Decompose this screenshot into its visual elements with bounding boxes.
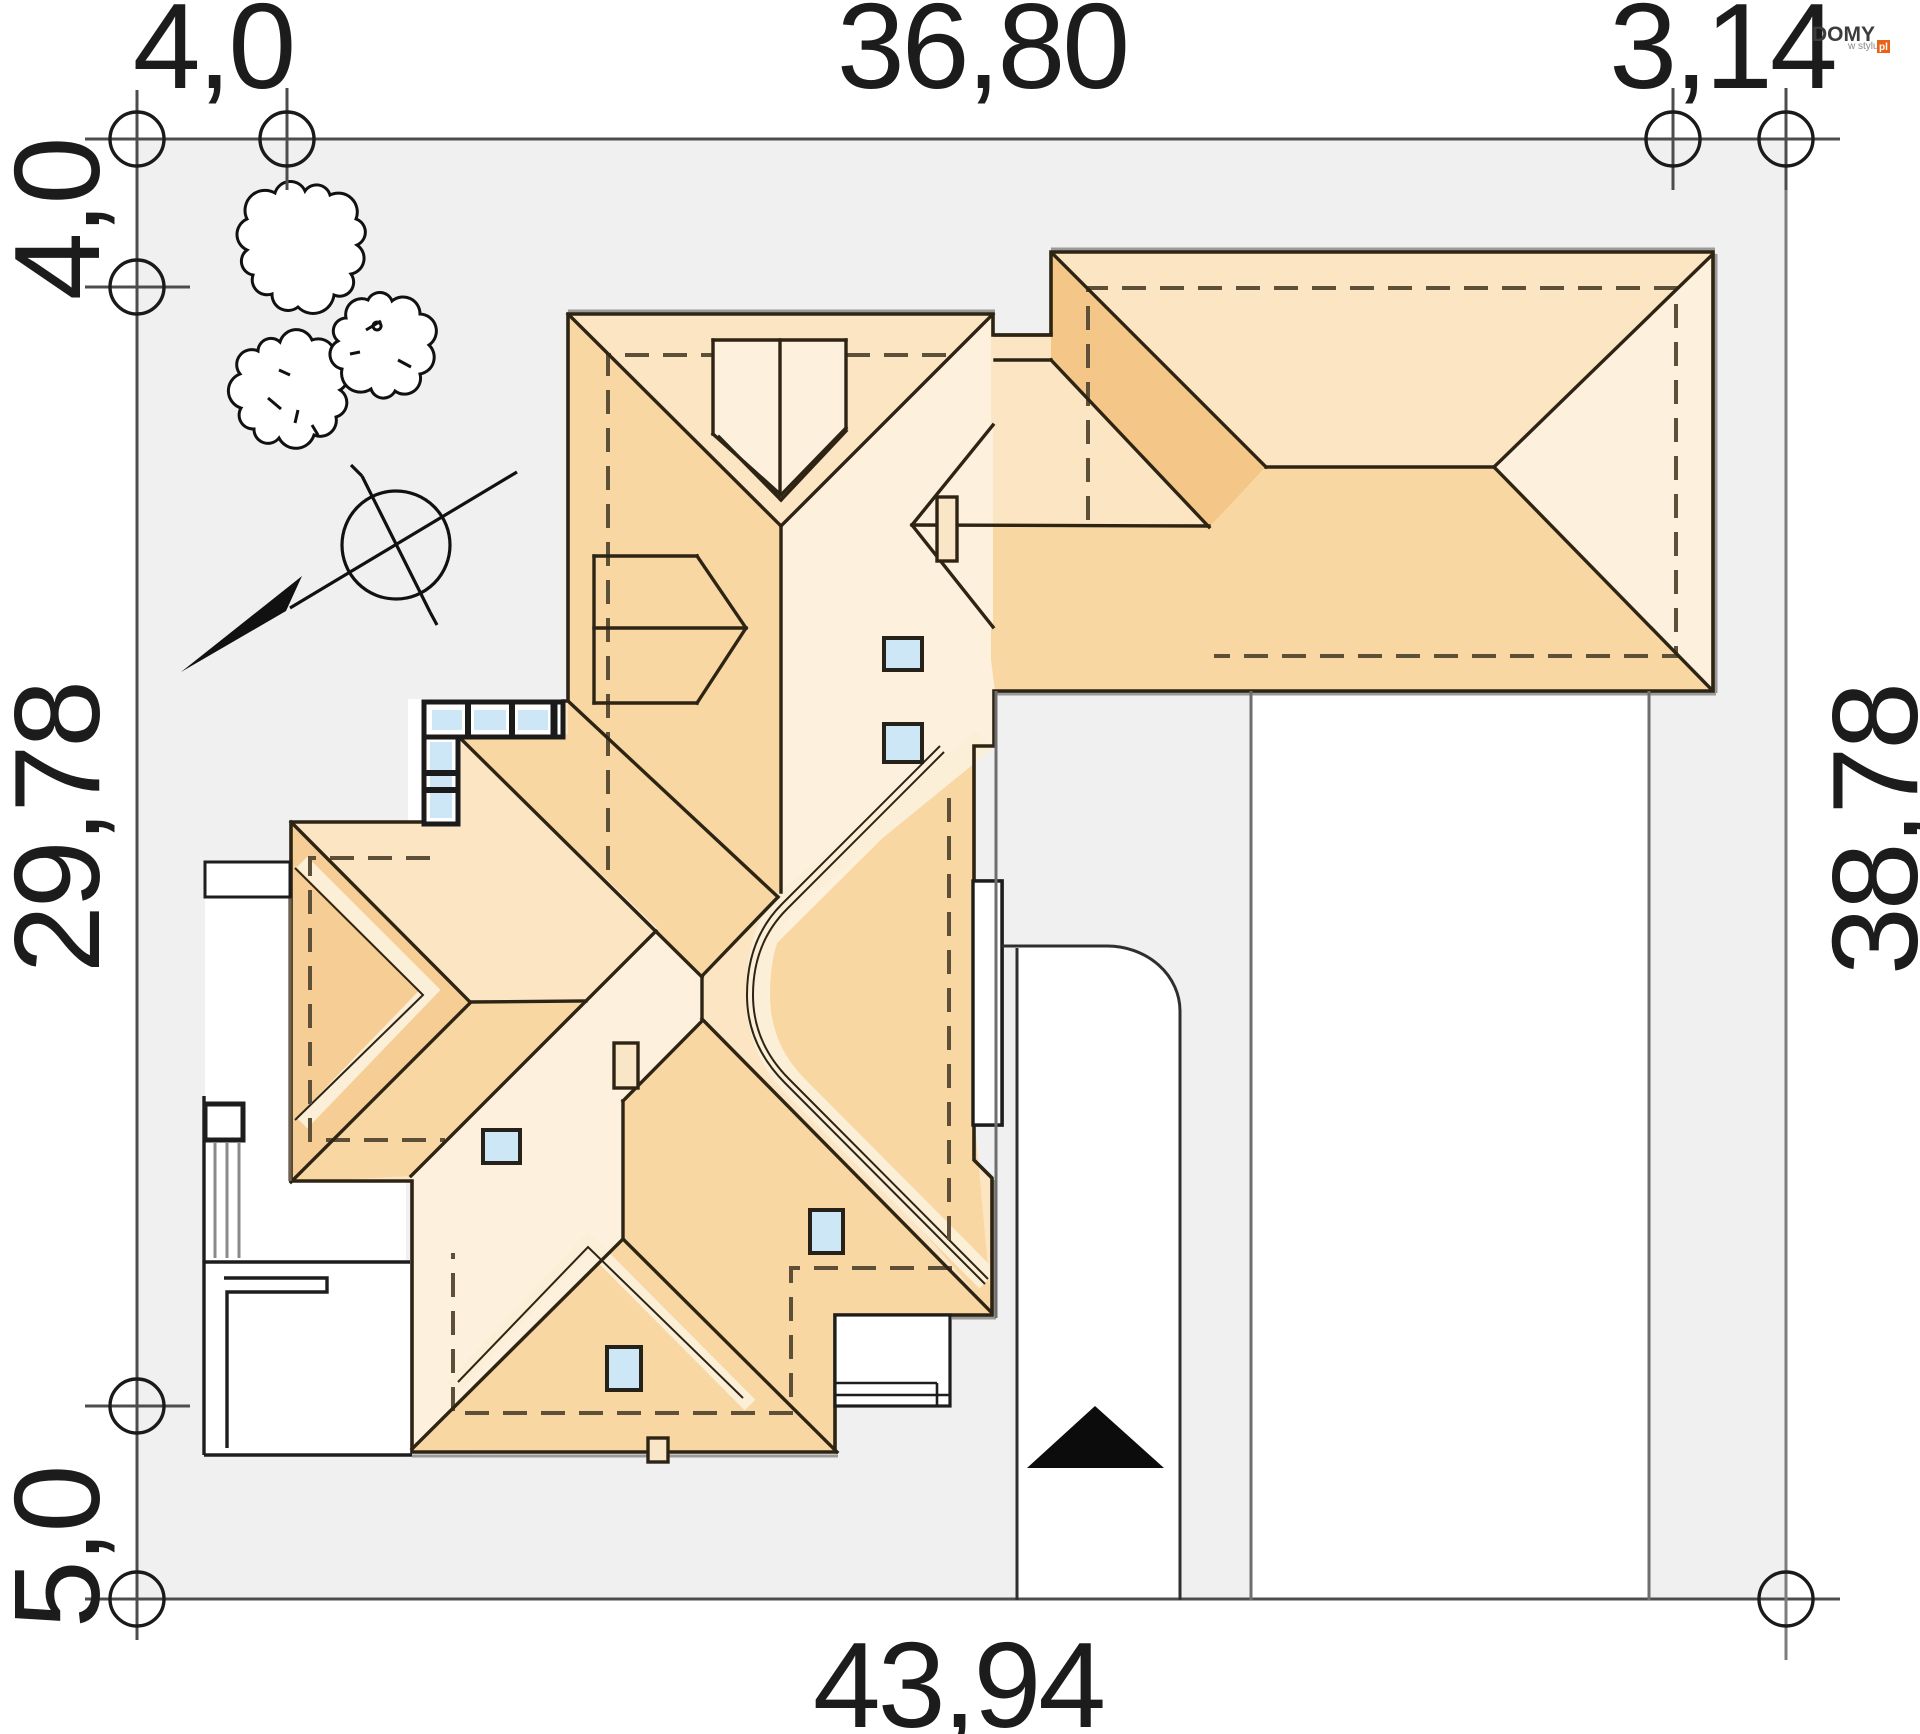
svg-text:38,78: 38,78 (1807, 685, 1920, 975)
svg-text:pl: pl (1879, 42, 1888, 53)
svg-text:w stylu: w stylu (1847, 41, 1879, 52)
svg-text:5,0: 5,0 (0, 1468, 125, 1629)
svg-text:43,94: 43,94 (813, 1617, 1103, 1734)
svg-text:36,80: 36,80 (837, 0, 1127, 114)
svg-text:3,14: 3,14 (1609, 0, 1835, 114)
svg-text:4,0: 4,0 (0, 140, 125, 301)
svg-text:29,78: 29,78 (0, 683, 125, 973)
svg-text:4,0: 4,0 (133, 0, 294, 114)
